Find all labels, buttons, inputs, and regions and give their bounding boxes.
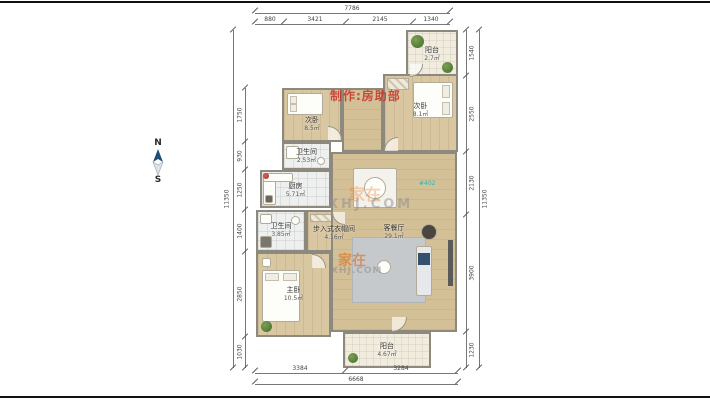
compass-south-label: S bbox=[148, 176, 168, 185]
dim-label: 1400 bbox=[237, 223, 244, 238]
dim-tick bbox=[455, 378, 461, 384]
room-area: 8.1㎡ bbox=[413, 111, 429, 119]
dim-line bbox=[245, 88, 246, 368]
dim-label: 2850 bbox=[237, 286, 244, 301]
sofa-pillow-icon bbox=[418, 253, 430, 265]
floor-plan-canvas: 阳台 2.7㎡ 次卧 8.1㎡ 次卧 8.5㎡ 卫生间 bbox=[0, 0, 710, 400]
compass: N S bbox=[148, 139, 168, 185]
bottom-frame-line bbox=[0, 396, 710, 398]
dim-tick bbox=[463, 364, 469, 370]
dim-label: 2130 bbox=[469, 175, 476, 190]
plant-icon bbox=[442, 62, 453, 73]
room-name: 卫生间 bbox=[296, 148, 317, 157]
room-bathroom-bottom: 卫生间 3.85㎡ bbox=[256, 210, 306, 252]
bed-icon bbox=[287, 93, 323, 115]
room-living-dining: 客餐厅 29.1㎡ bbox=[331, 152, 457, 332]
brand-watermark-en: XHJ.COM bbox=[328, 197, 413, 212]
dim-label: 7786 bbox=[344, 5, 359, 12]
compass-needle-icon bbox=[152, 149, 164, 175]
dim-label: 3284 bbox=[393, 365, 408, 372]
nightstand-icon bbox=[262, 258, 271, 267]
room-area: 10.5㎡ bbox=[284, 295, 303, 303]
dim-label: 2145 bbox=[372, 16, 387, 23]
room-area: 2.7㎡ bbox=[424, 55, 440, 63]
room-name: 阳台 bbox=[380, 342, 394, 351]
dim-label: 880 bbox=[264, 16, 275, 23]
sofa-icon bbox=[416, 246, 432, 296]
dim-line bbox=[255, 24, 450, 25]
room-name: 客餐厅 bbox=[384, 224, 405, 233]
dim-label: 1250 bbox=[237, 182, 244, 197]
dim-label: 11350 bbox=[482, 189, 489, 208]
room-balcony-bottom: 阳台 4.67㎡ bbox=[343, 332, 431, 368]
dim-label: 2550 bbox=[469, 106, 476, 121]
room-area: 3.85㎡ bbox=[271, 231, 290, 239]
dim-label: 1340 bbox=[423, 16, 438, 23]
dim-label: 3384 bbox=[292, 365, 307, 372]
dim-line bbox=[479, 30, 480, 368]
room-area: 4.67㎡ bbox=[377, 351, 396, 359]
room-name: 主卧 bbox=[287, 286, 301, 295]
dim-label: 1750 bbox=[237, 107, 244, 122]
dim-tick bbox=[455, 367, 461, 373]
dim-label: 1030 bbox=[237, 344, 244, 359]
room-name: 次卧 bbox=[305, 116, 319, 125]
dim-label: 930 bbox=[237, 150, 244, 161]
room-area: 29.1㎡ bbox=[384, 233, 403, 241]
dim-label: 3421 bbox=[307, 16, 322, 23]
room-bathroom-top: 卫生间 2.53㎡ bbox=[282, 142, 331, 170]
top-frame-line bbox=[0, 1, 710, 3]
tv-icon bbox=[448, 240, 453, 286]
dim-label: 3900 bbox=[469, 265, 476, 280]
dim-tick bbox=[447, 18, 453, 24]
room-kitchen: 厨房 5.71㎡ bbox=[260, 170, 331, 208]
room-name: 厨房 bbox=[289, 182, 303, 191]
room-area: 8.5㎡ bbox=[304, 125, 320, 133]
room-name: 次卧 bbox=[414, 102, 428, 111]
room-name: 卫生间 bbox=[271, 222, 292, 231]
dim-label: 1230 bbox=[469, 342, 476, 357]
room-name: 阳台 bbox=[425, 46, 439, 55]
maker-watermark: 制作:房助部 bbox=[330, 87, 401, 104]
dim-label: 11350 bbox=[224, 189, 231, 208]
dim-tick bbox=[447, 7, 453, 13]
dim-line bbox=[255, 373, 458, 374]
dim-label: 6668 bbox=[348, 376, 363, 383]
room-area: 5.71㎡ bbox=[286, 191, 305, 199]
dim-tick bbox=[476, 364, 482, 370]
dim-line bbox=[255, 384, 458, 385]
dim-tick bbox=[230, 364, 236, 370]
dim-tick bbox=[242, 364, 248, 370]
dim-line bbox=[466, 30, 467, 368]
dim-label: 1540 bbox=[469, 45, 476, 60]
dim-line bbox=[233, 30, 234, 368]
compass-north-label: N bbox=[148, 139, 168, 148]
dim-line bbox=[255, 13, 450, 14]
unit-tag-label: #402 bbox=[419, 180, 435, 187]
flower-icon bbox=[263, 173, 269, 179]
plant-icon bbox=[261, 321, 272, 332]
brand-watermark-en: XHJ.COM bbox=[331, 266, 382, 276]
room-area: 2.53㎡ bbox=[297, 157, 316, 165]
